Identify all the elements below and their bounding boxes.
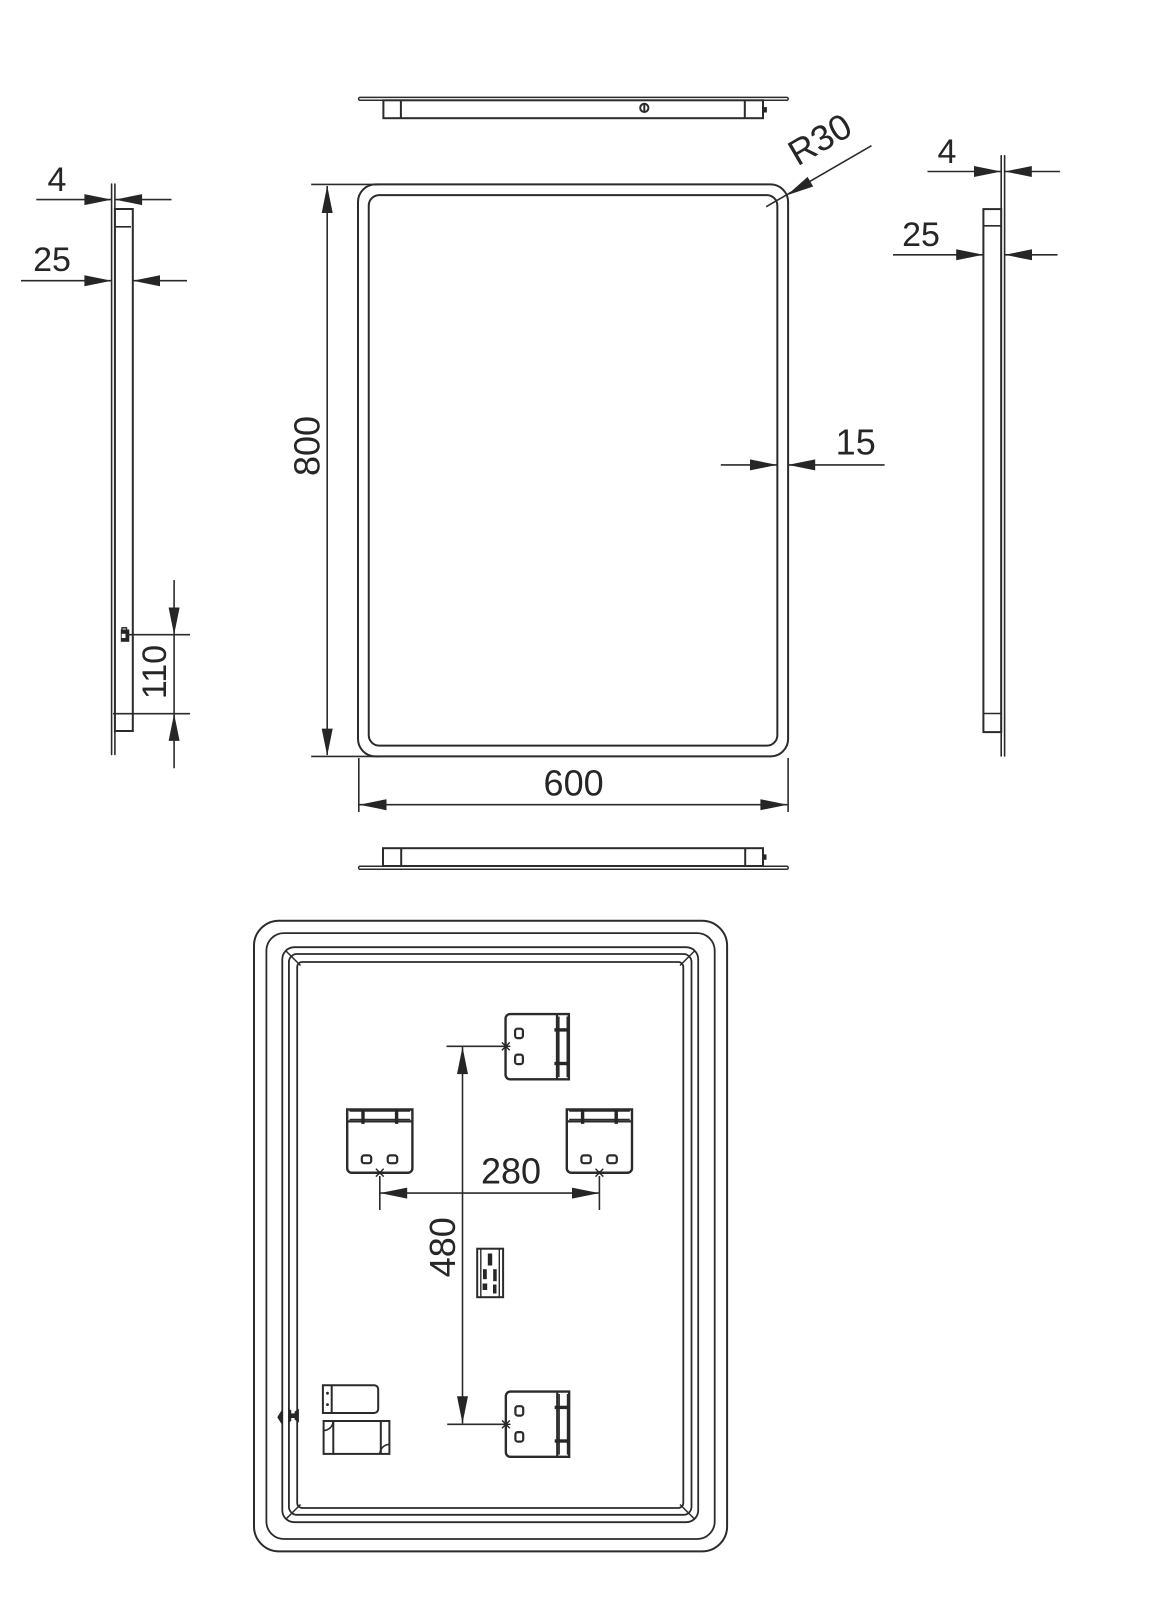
svg-text:R30: R30 xyxy=(781,105,859,174)
svg-text:800: 800 xyxy=(287,416,328,476)
svg-text:4: 4 xyxy=(938,133,957,171)
svg-text:600: 600 xyxy=(544,763,604,804)
svg-text:110: 110 xyxy=(136,645,174,699)
svg-text:280: 280 xyxy=(481,1151,541,1192)
svg-text:4: 4 xyxy=(48,161,67,199)
svg-text:15: 15 xyxy=(836,422,876,463)
svg-text:480: 480 xyxy=(422,1217,463,1277)
svg-text:25: 25 xyxy=(902,216,940,254)
svg-text:25: 25 xyxy=(33,241,71,279)
